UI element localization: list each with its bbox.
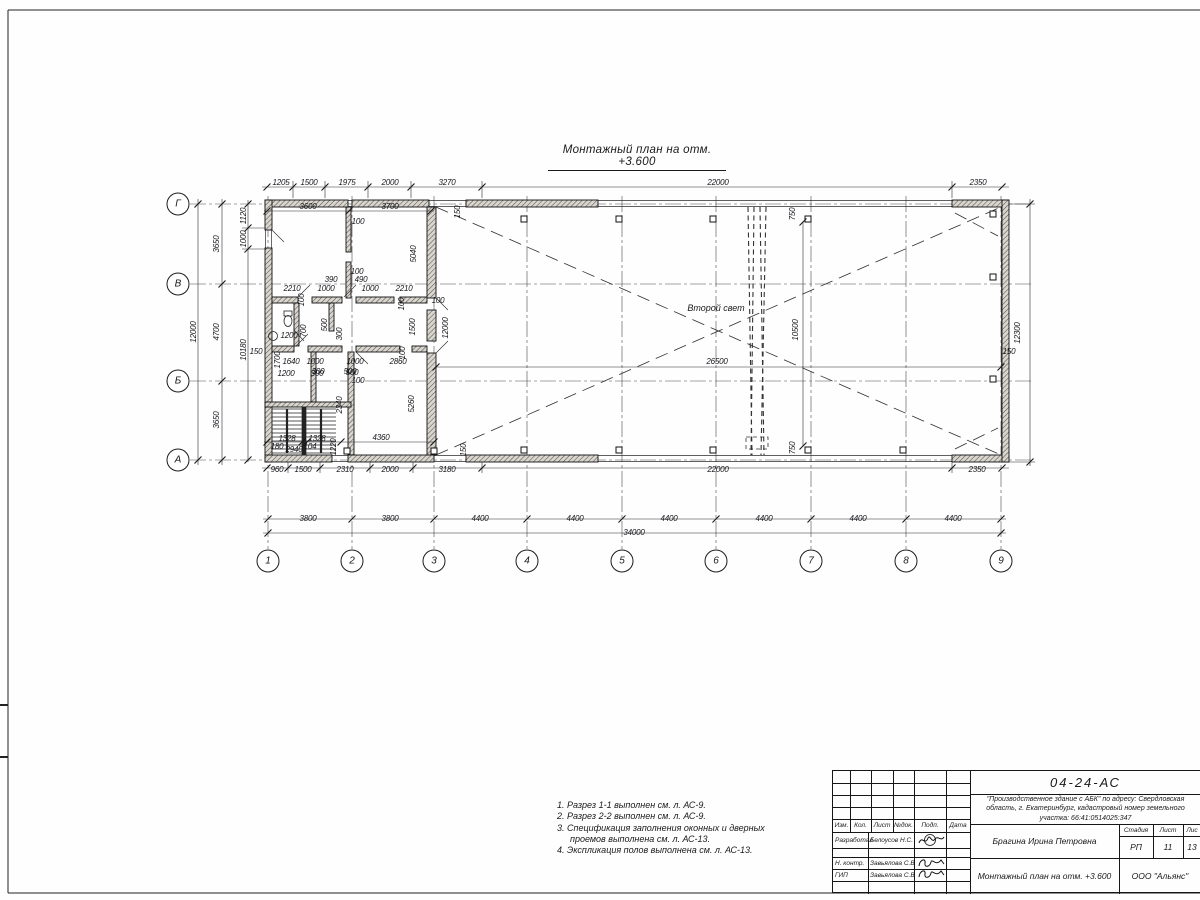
- void-cross: [436, 207, 1001, 455]
- dimension-label: 150: [454, 206, 462, 219]
- dimension-label: 2210: [396, 285, 413, 293]
- dimension-label: 960: [271, 466, 284, 474]
- tb-name-gip: Завьялова С.В: [868, 869, 916, 881]
- dimension-label: 150: [250, 348, 263, 356]
- note-line: 1. Разрез 1-1 выполнен см. л. АС-9.: [557, 800, 765, 811]
- second-light-label: Второй свет: [687, 303, 744, 313]
- grid-bubble-col-2: 2: [341, 550, 364, 573]
- dimension-label: 4360: [373, 434, 390, 442]
- tb-sheets-value: 13: [1183, 836, 1200, 858]
- dimension-label: 1000: [347, 358, 364, 366]
- dimension-lines: [198, 181, 1035, 533]
- dimension-label: 500: [321, 319, 329, 332]
- sheet-title: Монтажный план на отм. +3.600: [548, 144, 726, 171]
- grid-bubble-col-9: 9: [990, 550, 1013, 573]
- dimension-label: 2350: [970, 179, 987, 187]
- dimension-label: 100: [399, 347, 407, 360]
- dimension-label: 100: [352, 218, 365, 226]
- dimension-label: 1500: [295, 466, 312, 474]
- grid-bubble-col-8: 8: [895, 550, 918, 573]
- dimension-label: 2940: [286, 446, 303, 454]
- dimension-label: 22000: [707, 179, 728, 187]
- dimension-label: 1120: [240, 208, 248, 224]
- grid-bubble-row-Б: Б: [167, 370, 190, 393]
- tb-stage-value: РП: [1119, 836, 1153, 858]
- dimension-label: 100: [298, 294, 306, 307]
- dimension-label: 700: [300, 325, 308, 338]
- drawing-sheet: Монтажный план на отм. +3.600 Второй све…: [0, 0, 1200, 900]
- dimension-label: 3800: [300, 515, 317, 523]
- dimension-label: 2000: [382, 466, 399, 474]
- dimension-label: 34000: [623, 529, 644, 537]
- dimension-label: 1500: [301, 179, 318, 187]
- dimension-label: 3270: [439, 179, 456, 187]
- grid-bubble-row-А: А: [167, 449, 190, 472]
- tb-col-doc: №док.: [893, 819, 914, 832]
- tb-sheet-header: Лист: [1153, 824, 1183, 836]
- dimension-label: 1500: [409, 319, 417, 336]
- shaft-dashed-lines: [746, 207, 768, 455]
- tb-role-ncontrol: Н. контр.: [833, 857, 870, 869]
- grid-bubble-col-5: 5: [611, 550, 634, 573]
- grid-bubble-col-4: 4: [516, 550, 539, 573]
- dimension-label: 104: [304, 443, 317, 451]
- dimension-label: 1200: [278, 370, 295, 378]
- dimension-label: 390: [325, 276, 338, 284]
- tb-person: Брагина Ирина Петровна: [970, 824, 1119, 858]
- dimension-label: 4400: [850, 515, 867, 523]
- dimension-label: 2350: [969, 466, 986, 474]
- signature-gip: [917, 868, 945, 880]
- dimension-label: 1000: [307, 358, 324, 366]
- title-block: Изм. Кол. Лист №док. Подп. Дата Разработ…: [832, 770, 1200, 893]
- tb-project-line3: участка: 66:41:0514025:347: [1040, 814, 1132, 824]
- wall-faces: [265, 200, 1009, 462]
- dimension-label: 100: [351, 268, 364, 276]
- dimension-label: 1000: [240, 231, 248, 248]
- note-line: 3. Спецификация заполнения оконных и две…: [557, 823, 765, 834]
- dimension-label: 1640: [283, 358, 300, 366]
- dimension-label: 150: [460, 444, 468, 457]
- tb-col-data: Дата: [946, 819, 970, 832]
- dimension-label: 1975: [339, 179, 356, 187]
- tb-sheets-header: Лис: [1183, 824, 1200, 836]
- dimension-label: 100: [398, 298, 406, 311]
- grid-bubble-col-1: 1: [257, 550, 280, 573]
- dimension-label: 2310: [337, 466, 354, 474]
- dimension-label: 100: [352, 377, 365, 385]
- dimension-label: 300: [336, 328, 344, 341]
- notes-block: 1. Разрез 1-1 выполнен см. л. АС-9.2. Ра…: [557, 800, 765, 856]
- tb-role-developer: Разработал: [833, 832, 870, 848]
- dimension-label: 4400: [472, 515, 489, 523]
- dimension-label: 3650: [213, 412, 221, 429]
- signature-developer: [917, 833, 945, 847]
- dimension-label: 150: [1003, 348, 1016, 356]
- dimension-label: 5260: [408, 396, 416, 413]
- dimension-label: 2210: [284, 285, 301, 293]
- dimension-label: 1700: [274, 352, 282, 369]
- dimension-label: 10180: [240, 339, 248, 360]
- dimension-label: 3600: [300, 203, 317, 211]
- dimension-label: 1205: [273, 179, 290, 187]
- dimension-label: 1000: [318, 285, 335, 293]
- dimension-label: 300: [311, 370, 324, 378]
- note-line: 2. Разрез 2-2 выполнен см. л. АС-9.: [557, 811, 765, 822]
- dimension-label: 26500: [706, 358, 727, 366]
- grid-bubble-row-Г: Г: [167, 193, 190, 216]
- tb-project-line1: "Производственное здание с АБК" по адрес…: [987, 795, 1185, 805]
- tb-name-developer: Белоусов Н.С.: [868, 832, 916, 848]
- grid-bubble-row-В: В: [167, 273, 190, 296]
- dimension-label: 4400: [567, 515, 584, 523]
- dimension-label: 180: [271, 443, 284, 451]
- dimension-label: 4400: [661, 515, 678, 523]
- dimension-label: 490: [355, 276, 368, 284]
- tb-drawing-title: Монтажный план на отм. +3.600: [970, 858, 1119, 894]
- grid-bubble-col-7: 7: [800, 550, 823, 573]
- tb-col-kol: Кол.: [850, 819, 871, 832]
- dimension-label: 1220: [330, 439, 338, 456]
- tb-project-description: "Производственное здание с АБК" по адрес…: [970, 794, 1200, 824]
- tb-sheet-value: 11: [1153, 836, 1183, 858]
- dimension-label: 4400: [945, 515, 962, 523]
- tb-col-list: Лист: [871, 819, 893, 832]
- walls: [265, 200, 1009, 462]
- dimension-label: 750: [789, 208, 797, 221]
- tb-stage-header: Стадия: [1119, 824, 1153, 836]
- grid-bubble-col-6: 6: [705, 550, 728, 573]
- tb-col-podp: Подп.: [914, 819, 946, 832]
- dimension-label: 4400: [756, 515, 773, 523]
- dimension-label: 2000: [382, 179, 399, 187]
- dimension-label: 4700: [213, 324, 221, 341]
- note-line: 4. Экспликация полов выполнена см. л. АС…: [557, 845, 765, 856]
- dimension-label: 750: [789, 442, 797, 455]
- dimension-label: 1000: [362, 285, 379, 293]
- grid-bubble-col-3: 3: [423, 550, 446, 573]
- tb-project-line2: область, г. Екатеринбург, кадастровый но…: [986, 804, 1185, 814]
- dimension-label: 5040: [410, 246, 418, 263]
- dimension-label: 22000: [707, 466, 728, 474]
- dimension-label: 3650: [213, 236, 221, 253]
- dimension-label: 10500: [792, 319, 800, 340]
- dimension-label: 3800: [382, 515, 399, 523]
- dimension-label: 3180: [439, 466, 456, 474]
- dimension-label: 12300: [1014, 322, 1022, 343]
- tb-col-izm: Изм.: [833, 819, 850, 832]
- dimension-label: 12000: [442, 317, 450, 338]
- note-line: проемов выполнена см. л. АС-13.: [557, 834, 765, 845]
- dimension-label: 2340: [336, 397, 344, 414]
- tb-doc-number: 04-24-АС: [970, 771, 1200, 794]
- tb-name-ncontrol: Завьялова С.В: [868, 857, 916, 869]
- dimension-label: 1200: [281, 332, 298, 340]
- dimension-label: 12000: [190, 321, 198, 342]
- tb-role-gip: ГИП: [833, 869, 870, 881]
- dimension-label: 100: [432, 297, 445, 305]
- tb-company: ООО "Альянс": [1119, 858, 1200, 894]
- dimension-label: 3700: [382, 203, 399, 211]
